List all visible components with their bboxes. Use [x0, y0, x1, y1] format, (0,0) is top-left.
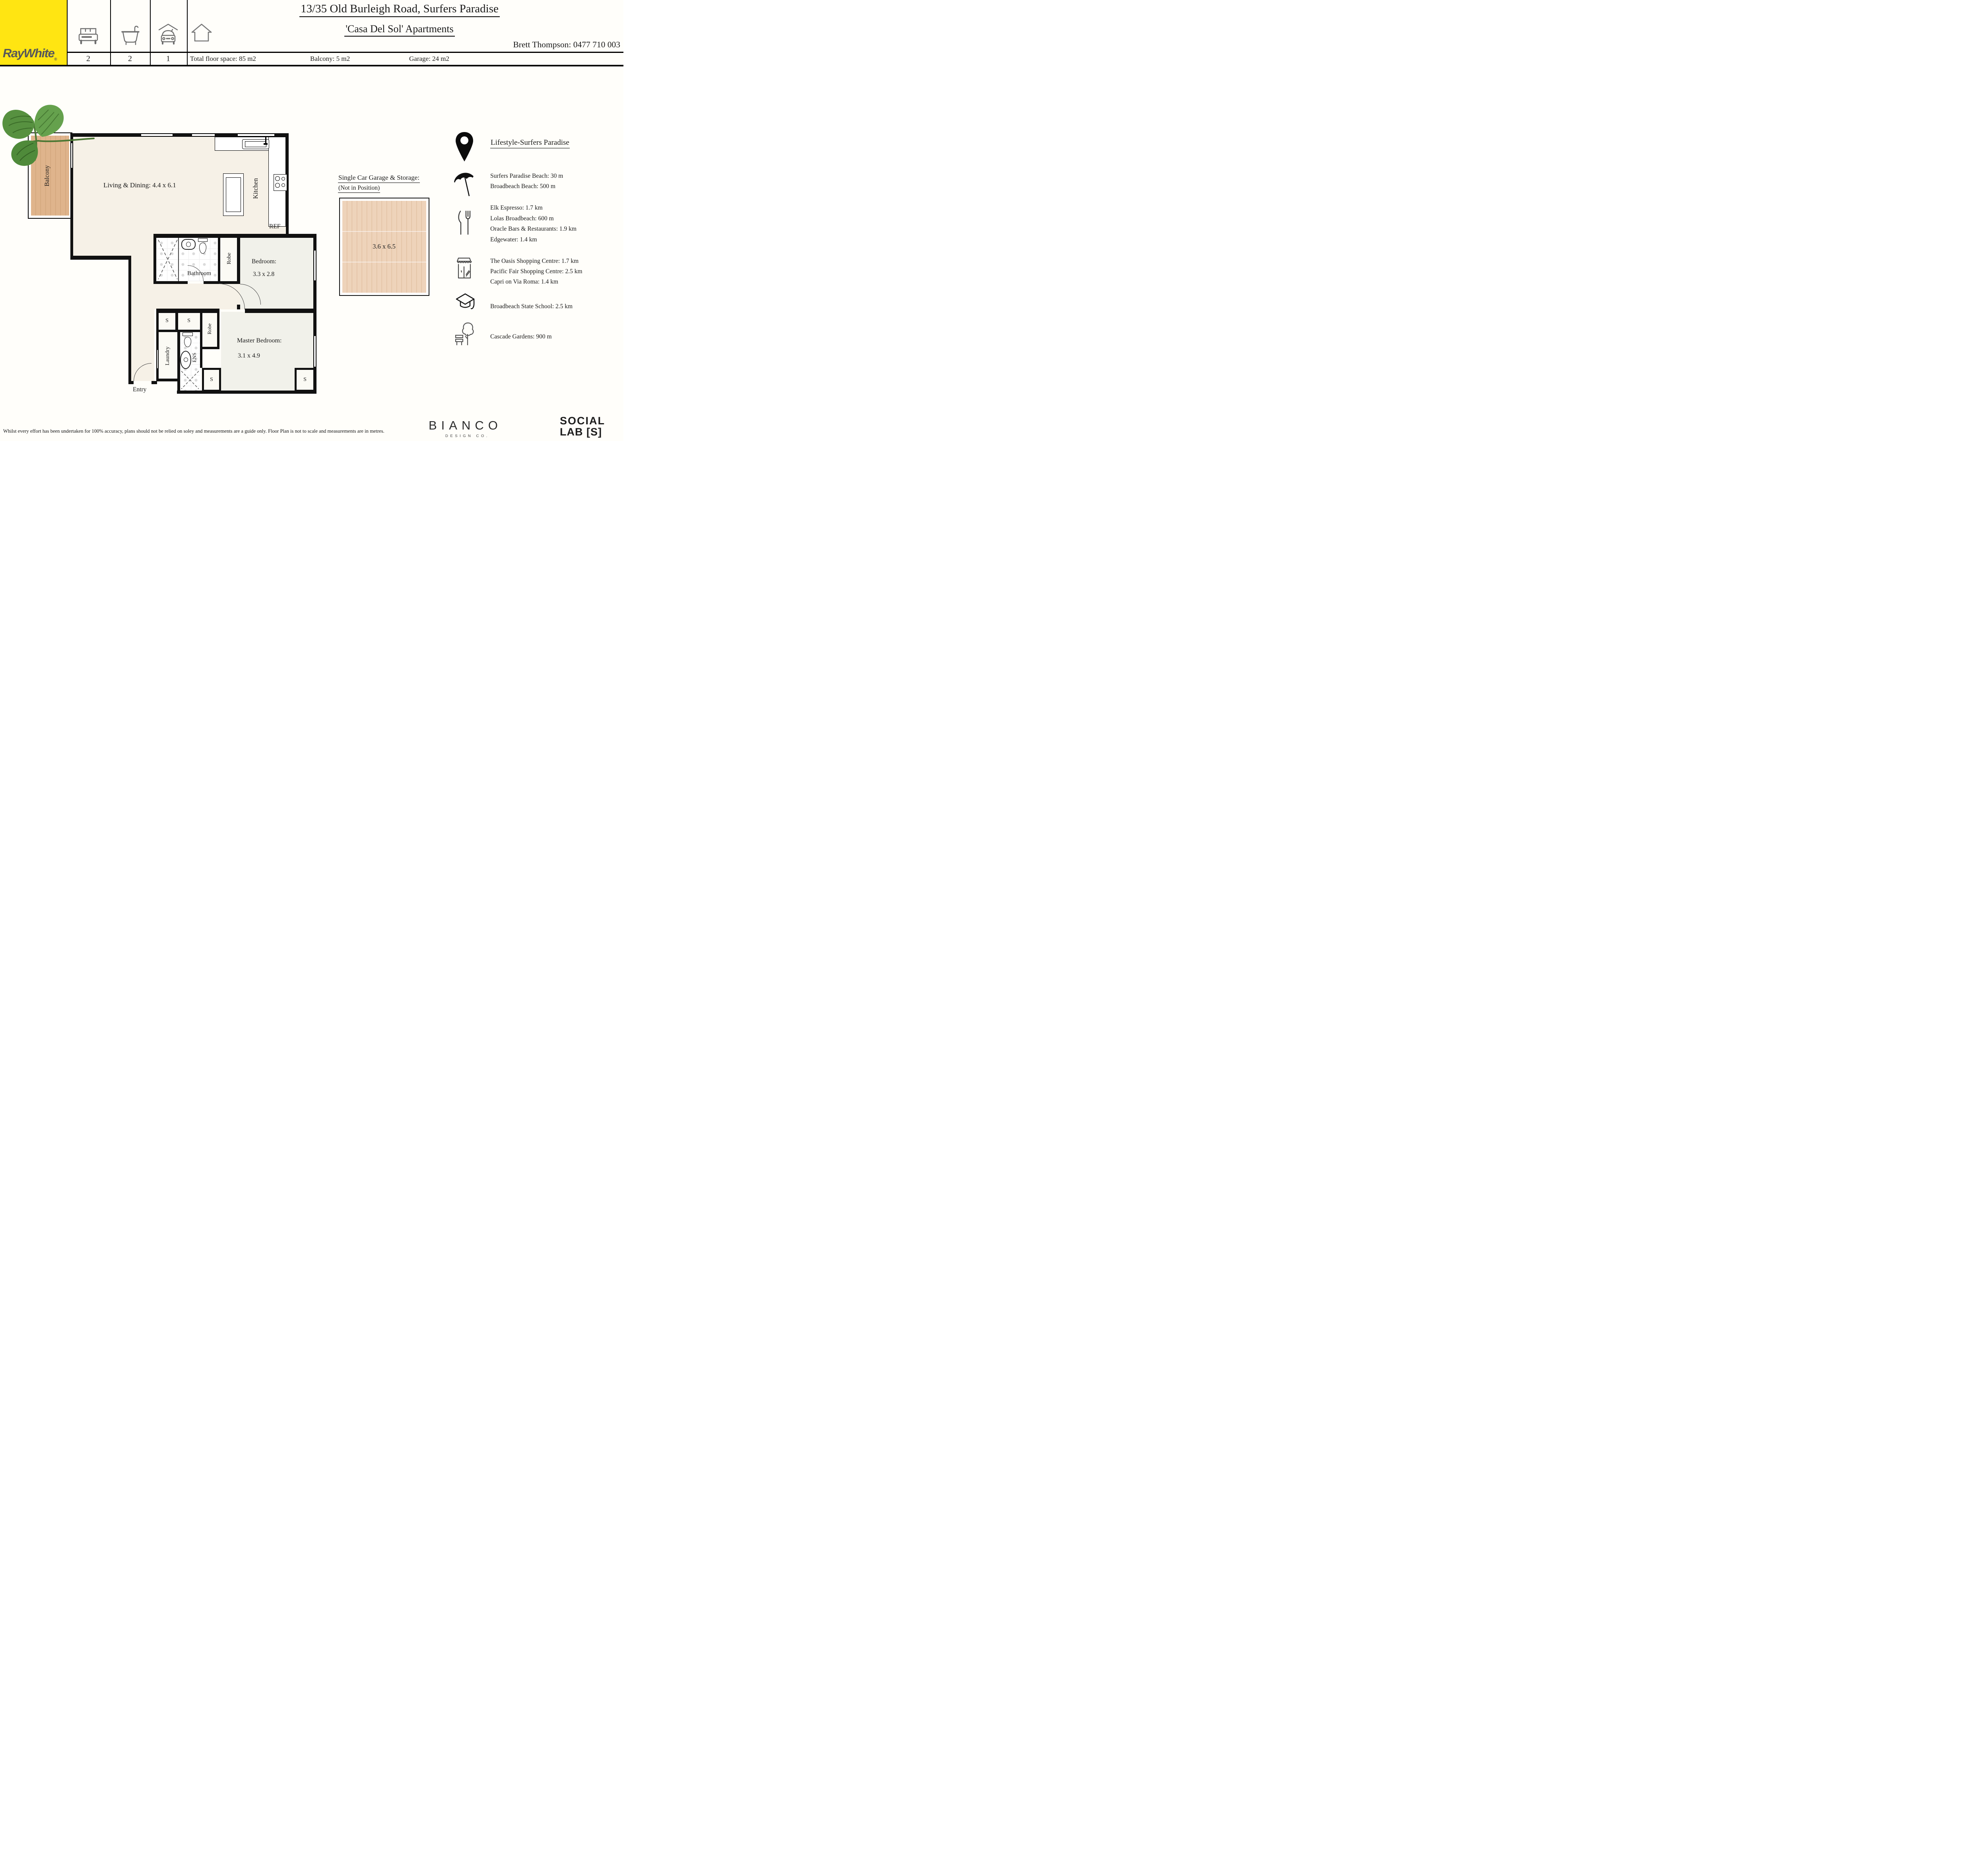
- shopping-item: Capri on Via Roma: 1.4 km: [490, 278, 558, 286]
- park-item: Cascade Gardens: 900 m: [490, 333, 552, 340]
- stove-burner: [282, 177, 285, 181]
- wall: [237, 238, 240, 284]
- registered-mark: ®: [54, 57, 56, 62]
- ens-sink-drain: [184, 358, 188, 362]
- address-title: 13/35 Old Burleigh Road, Surfers Paradis…: [299, 2, 500, 17]
- dining-item: Edgewater: 1.4 km: [490, 236, 537, 243]
- master-label: Master Bedroom:: [237, 337, 282, 344]
- living-label: Living & Dining: 4.4 x 6.1: [103, 181, 176, 189]
- car-icon: [157, 23, 179, 46]
- ens-shower-icon: [181, 370, 200, 390]
- hall-floor: [131, 257, 154, 381]
- shopping-item: Pacific Fair Shopping Centre: 2.5 km: [490, 268, 582, 275]
- wall: [218, 238, 220, 281]
- bedroom-dims: 3.3 x 2.8: [253, 271, 274, 278]
- shop-icon: [455, 257, 473, 280]
- wall: [153, 234, 316, 238]
- wall: [70, 256, 131, 260]
- page-subtitle: 'Casa Del Sol' Apartments: [187, 23, 612, 37]
- wall: [156, 379, 180, 381]
- wall: [200, 309, 202, 368]
- ref-label: REF: [269, 223, 280, 230]
- header-bottom-bar: [0, 65, 623, 66]
- shower-icon: [157, 239, 178, 280]
- wall: [175, 309, 178, 330]
- stove-burner: [275, 176, 280, 181]
- beach-item: Broadbeach Beach: 500 m: [490, 183, 555, 190]
- wall: [313, 280, 316, 336]
- social-lab-logo: SOCIAL LAB [S]: [560, 415, 620, 438]
- wall: [245, 309, 316, 313]
- beach-item: Surfers Paradise Beach: 30 m: [490, 173, 563, 180]
- robe-label: Robe: [226, 253, 233, 264]
- raywhite-wordmark: RayWhite: [3, 46, 54, 60]
- header-divider: [110, 0, 111, 66]
- header-divider: [67, 0, 68, 66]
- shower-divider: [178, 238, 179, 281]
- bath-icon: [120, 25, 141, 46]
- lifestyle-heading: Lifestyle-Surfers Paradise: [490, 138, 570, 148]
- beach-umbrella-icon: [454, 172, 474, 197]
- building-name: 'Casa Del Sol' Apartments: [344, 23, 455, 37]
- header-divider: [150, 0, 151, 66]
- kitchen-label: Kitchen: [252, 178, 260, 199]
- window: [313, 251, 316, 280]
- header: RayWhite®: [0, 0, 623, 67]
- bedroom-label: Bedroom:: [252, 258, 276, 265]
- wall: [156, 309, 159, 381]
- dining-item: Elk Espresso: 1.7 km: [490, 204, 543, 212]
- window: [141, 133, 173, 137]
- lifestyle-heading-text: Lifestyle-Surfers Paradise: [490, 138, 570, 148]
- ens-toilet: [182, 332, 193, 336]
- social-lab-line2: LAB [S]: [560, 426, 620, 437]
- laundry-label: Laundry: [165, 346, 171, 365]
- storage-label: S: [303, 377, 307, 383]
- stove-burner: [282, 183, 285, 187]
- garage-dims: 3.6 x 6.5: [373, 243, 396, 251]
- beds-count: 2: [86, 54, 90, 64]
- garage-title: Single Car Garage & Storage:: [338, 174, 420, 183]
- bianco-wordmark: BIANCO: [429, 418, 544, 433]
- ens-label: ENS: [191, 353, 198, 363]
- bianco-logo: BIANCO DESIGN CO.: [429, 418, 544, 438]
- baths-count: 2: [128, 54, 132, 64]
- location-pin-icon: [454, 131, 474, 162]
- living-floor: [73, 234, 153, 257]
- window: [313, 336, 316, 367]
- garage-deck-line: [342, 262, 426, 262]
- page-title: 13/35 Old Burleigh Road, Surfers Paradis…: [187, 2, 612, 17]
- garage-title-text: Single Car Garage & Storage:: [338, 174, 420, 183]
- window: [192, 133, 215, 137]
- laundry-door: [156, 350, 159, 368]
- garage-area: Garage: 24 m2: [409, 55, 449, 63]
- wall: [177, 330, 180, 394]
- floorplan-flyer-page: RayWhite®: [0, 0, 623, 441]
- school-item: Broadbeach State School: 2.5 km: [490, 303, 573, 310]
- wall: [156, 309, 219, 313]
- disclaimer: Whilst every effort has been undertaken …: [3, 428, 384, 434]
- window: [238, 133, 274, 137]
- bed-icon: [77, 26, 99, 45]
- dining-item: Oracle Bars & Restaurants: 1.9 km: [490, 225, 577, 233]
- school-icon: [455, 293, 475, 317]
- entry-label: Entry: [133, 386, 146, 393]
- storage-label: S: [187, 318, 190, 324]
- total-floor-space: Total floor space: 85 m2: [190, 55, 256, 63]
- kitchen-island-top: [226, 177, 241, 212]
- bianco-tagline: DESIGN CO.: [445, 434, 544, 438]
- kitchen-sink-basin: [245, 141, 266, 147]
- balcony-area: Balcony: 5 m2: [310, 55, 350, 63]
- park-icon: [454, 322, 475, 346]
- social-lab-line1: SOCIAL: [560, 415, 620, 426]
- garage-subtitle-text: (Not in Position): [338, 185, 380, 193]
- bathroom-label: Bathroom: [187, 270, 211, 277]
- storage-label: S: [210, 377, 213, 383]
- wall: [151, 381, 157, 384]
- dining-icon: [456, 210, 471, 235]
- shopping-item: The Oasis Shopping Centre: 1.7 km: [490, 258, 579, 265]
- wall: [313, 234, 316, 251]
- toilet: [198, 238, 208, 242]
- robe2-label: Robe: [206, 323, 213, 334]
- bath-sink-drain: [186, 242, 191, 247]
- monstera-plant: [0, 102, 95, 173]
- wall: [217, 309, 219, 349]
- kitchen-faucet: [264, 143, 268, 145]
- garage-subtitle: (Not in Position): [338, 185, 380, 193]
- garage-deck-line: [342, 231, 426, 232]
- cars-count: 1: [166, 54, 170, 64]
- wall: [153, 234, 156, 284]
- wall: [202, 347, 219, 349]
- storage-label: S: [165, 318, 169, 324]
- wall: [128, 381, 134, 384]
- header-divider: [187, 0, 188, 66]
- dining-item: Lolas Broadbeach: 600 m: [490, 215, 554, 222]
- master-dims: 3.1 x 4.9: [238, 352, 260, 360]
- raywhite-logo: RayWhite®: [3, 46, 56, 62]
- wall: [128, 256, 131, 384]
- agent-contact: Brett Thompson: 0477 710 003: [358, 40, 620, 50]
- wall: [153, 281, 188, 284]
- stove-burner: [275, 183, 280, 188]
